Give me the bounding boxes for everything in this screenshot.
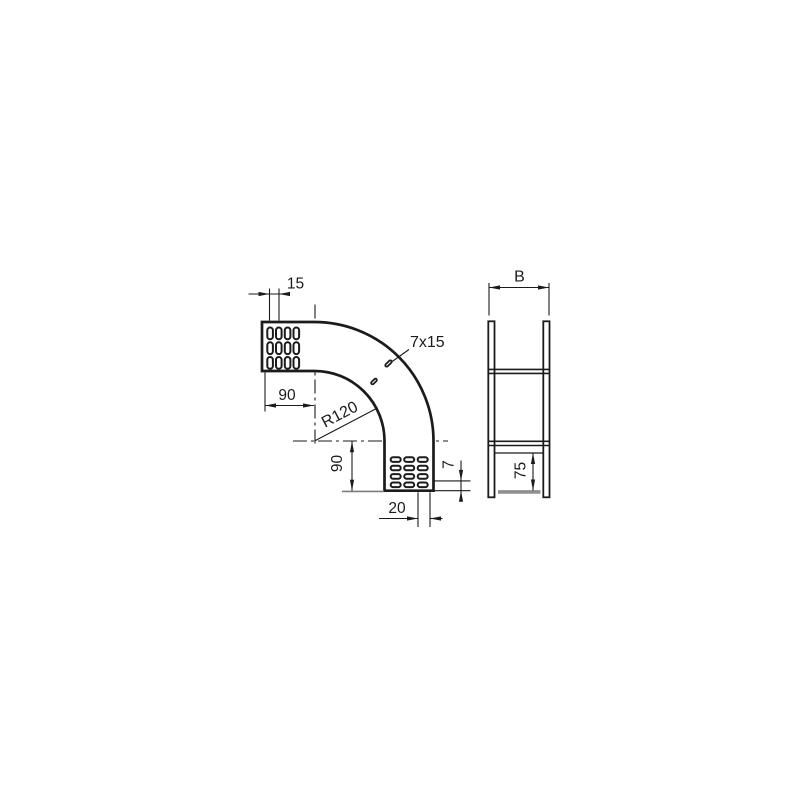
- perforation-slot: [418, 474, 428, 479]
- dimension-15: 15: [249, 276, 305, 321]
- perforation-slot: [294, 328, 300, 340]
- dim-label-width: B: [514, 269, 525, 286]
- perforation-slot: [267, 342, 273, 354]
- perforation-slot: [391, 466, 401, 471]
- left-rail: [488, 321, 494, 497]
- arrowhead: [407, 516, 418, 520]
- arrowhead: [489, 285, 500, 289]
- dimension-20: 20: [379, 492, 443, 527]
- dim-label-slot-size: 7x15: [410, 334, 445, 351]
- perforation-slot: [391, 457, 401, 462]
- right-rail: [543, 321, 549, 497]
- perforation-slot: [418, 466, 428, 471]
- perforation-slot: [404, 483, 414, 488]
- perforation-slot: [418, 483, 428, 488]
- perforation-slot: [276, 328, 282, 340]
- upper-rung: [488, 369, 549, 373]
- dim-label-horizontal-end: 90: [278, 387, 296, 404]
- perforation-slot: [267, 328, 273, 340]
- perforation-slot: [294, 357, 300, 369]
- radius-callout: R120: [315, 399, 377, 441]
- perforation-slot: [294, 342, 300, 354]
- perforation-slot: [285, 357, 291, 369]
- dim-label-radius: R120: [319, 399, 361, 432]
- drawing-canvas: 15 90 R120 7x15 90: [0, 0, 800, 800]
- perforation-slot: [285, 342, 291, 354]
- arrowhead: [430, 516, 441, 520]
- perforation-slot: [391, 474, 401, 479]
- dim-label-flange-height: 7: [441, 460, 458, 469]
- dim-label-slot-pitch: 15: [287, 276, 304, 293]
- bend-view: 15 90 R120 7x15 90: [249, 276, 471, 528]
- dimension-75: 75: [513, 453, 536, 491]
- arrowhead: [265, 403, 276, 407]
- arrowhead: [459, 491, 463, 502]
- lower-rung: [488, 441, 549, 453]
- technical-drawing: 15 90 R120 7x15 90: [0, 0, 800, 800]
- dim-label-side-height: 75: [513, 462, 530, 479]
- perforation-slot: [404, 457, 414, 462]
- perforation-slot: [276, 357, 282, 369]
- perforation-slot: [267, 357, 273, 369]
- dimension-B: B: [489, 269, 549, 316]
- dimension-90-vertical: 90: [329, 441, 384, 491]
- perforation-slot: [404, 466, 414, 471]
- arrowhead: [350, 441, 354, 452]
- perforation-slot: [276, 342, 282, 354]
- dimension-7: 7: [434, 460, 471, 502]
- perforation-slot: [418, 457, 428, 462]
- arrowhead: [531, 480, 535, 491]
- perforation-slot: [391, 483, 401, 488]
- perforation-slot: [404, 474, 414, 479]
- dim-label-bottom-slot-width: 20: [388, 500, 406, 517]
- arrowhead: [259, 292, 270, 296]
- arrowhead: [279, 292, 290, 296]
- arrowhead: [538, 285, 549, 289]
- arrowhead: [303, 403, 314, 407]
- arrowhead: [350, 480, 354, 491]
- arrowhead: [531, 453, 535, 464]
- dim-label-vertical-end: 90: [329, 455, 346, 473]
- perforation-slot: [285, 328, 291, 340]
- arrowhead: [459, 470, 463, 481]
- section-view: B 75: [488, 269, 549, 498]
- dimension-90-horizontal: 90: [265, 373, 314, 412]
